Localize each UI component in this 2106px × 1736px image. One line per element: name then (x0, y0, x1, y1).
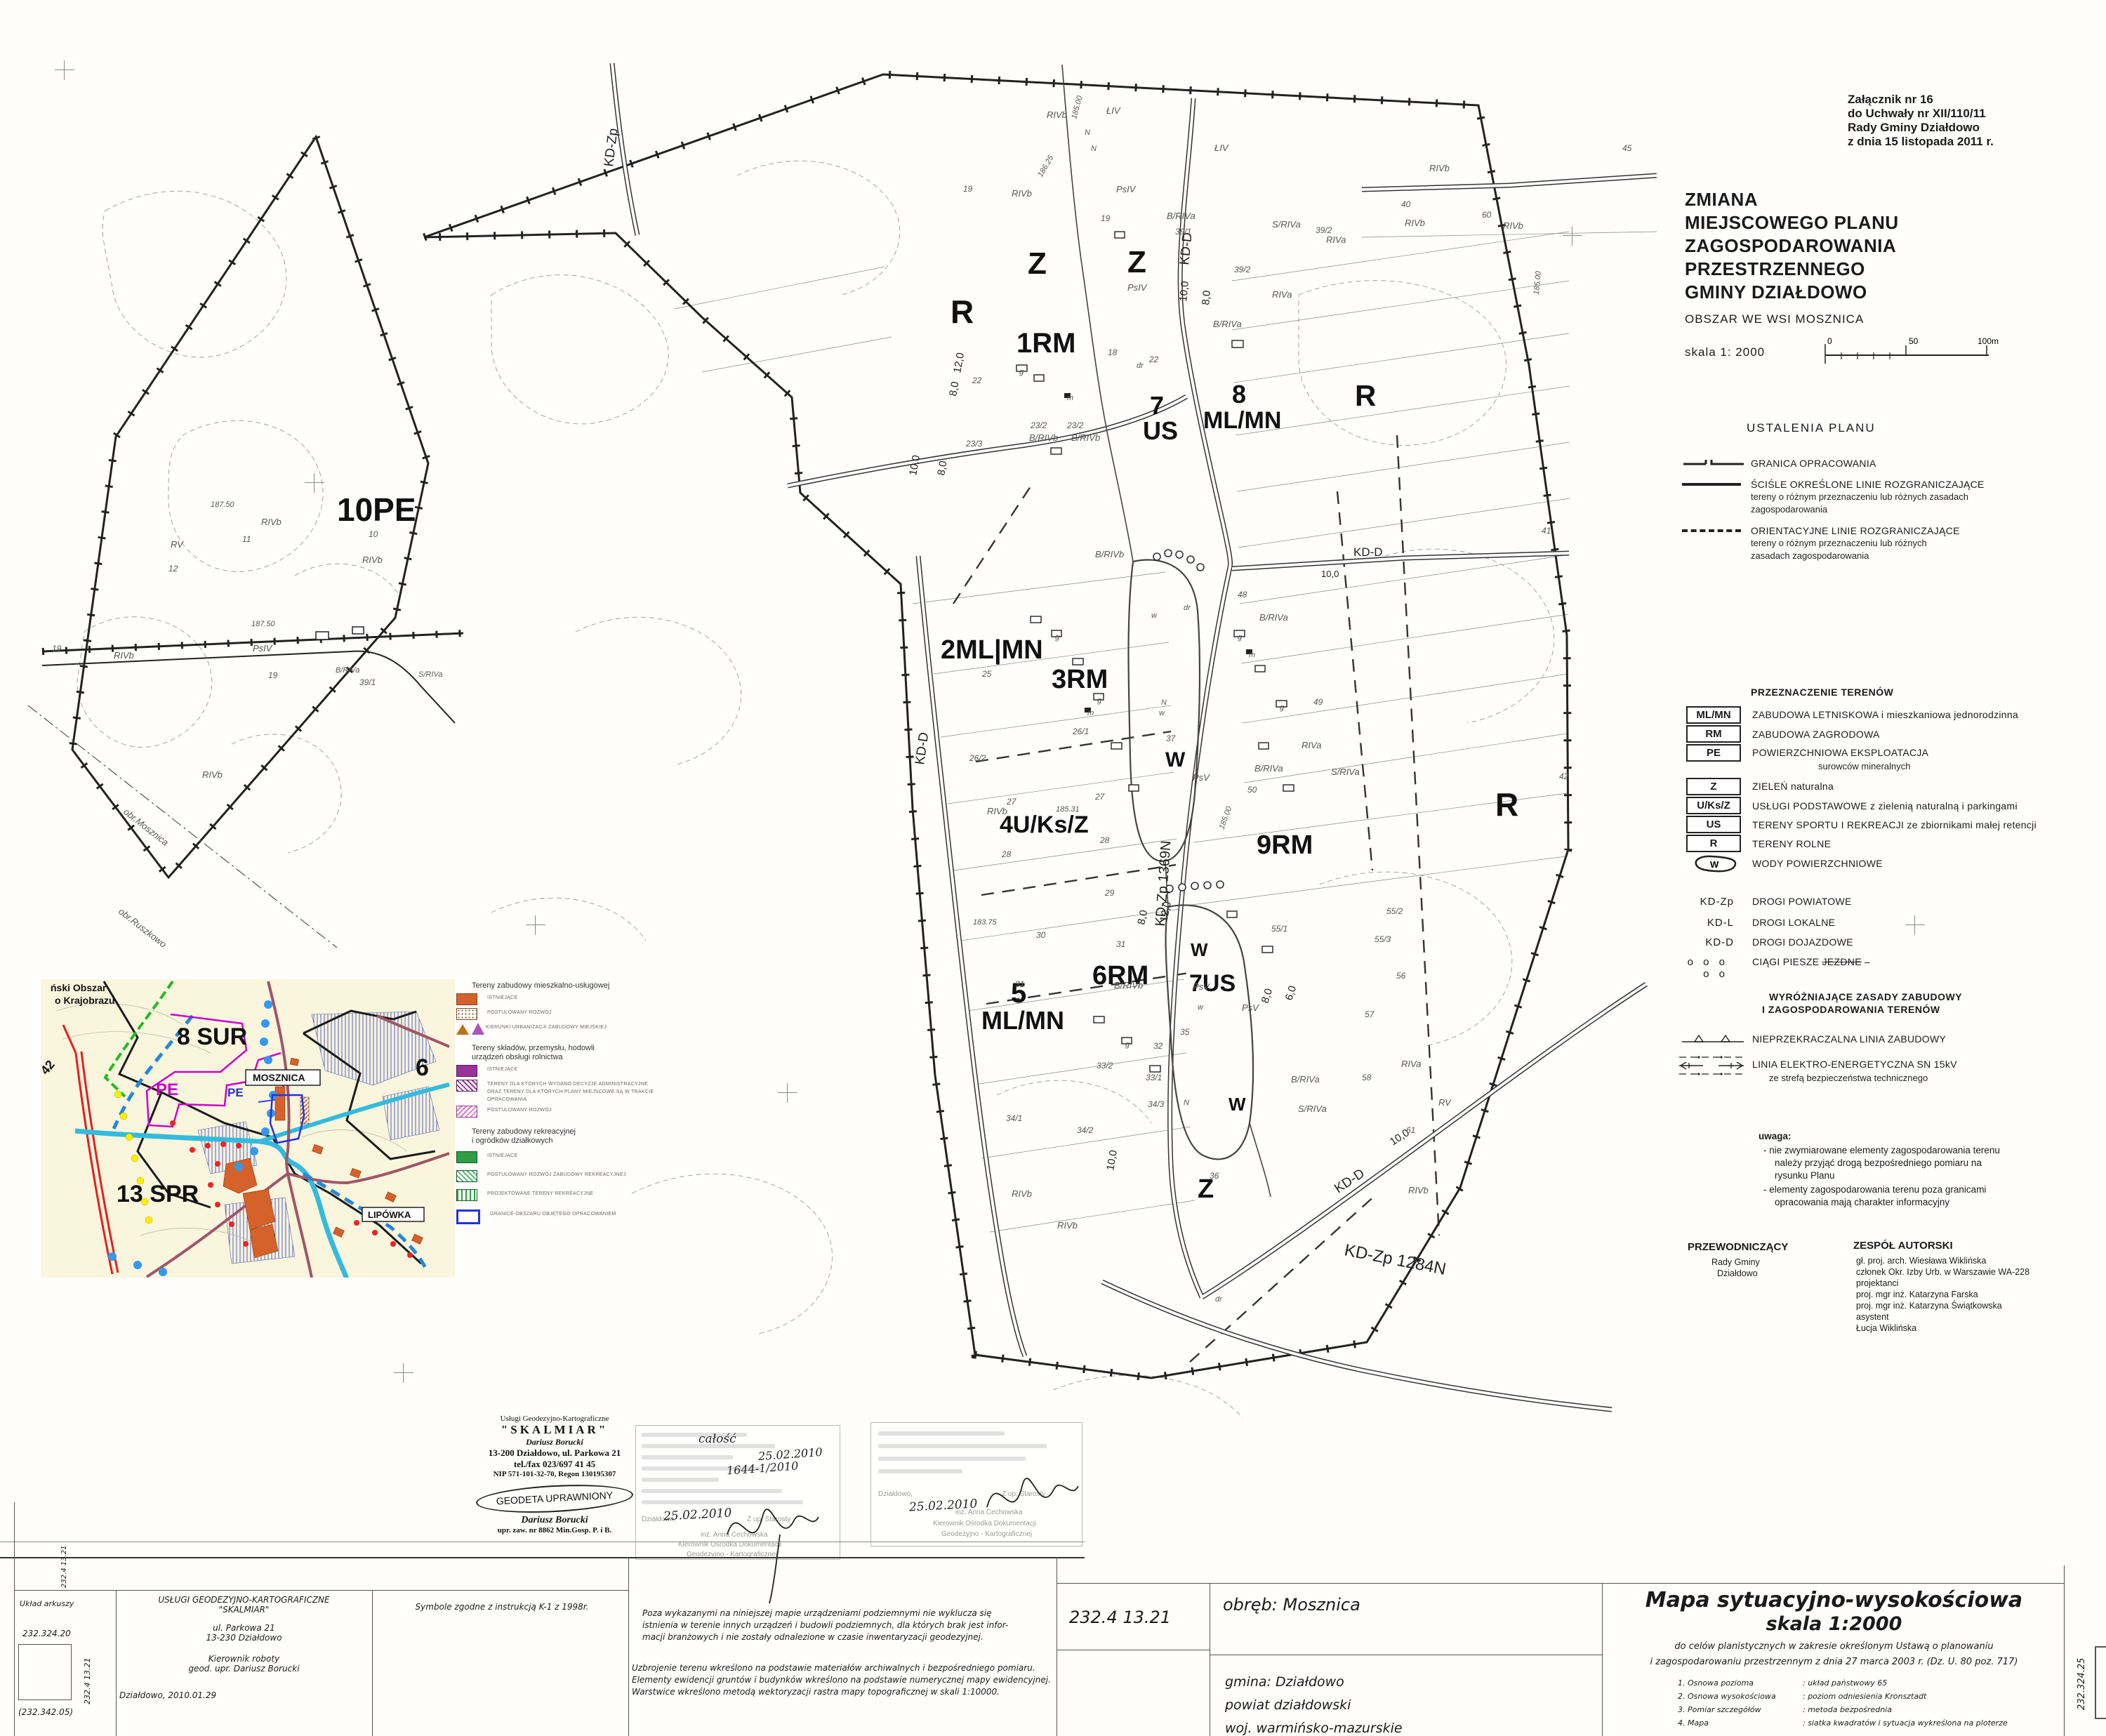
soil-label: RIVb (362, 555, 383, 565)
soil-label: RV (171, 539, 184, 550)
legend-item-sub: zagospodarowania (1751, 504, 1827, 515)
footer-border (1210, 1655, 1602, 1655)
svg-text:B/RIVa: B/RIVa (1259, 612, 1288, 623)
footer-border (372, 1590, 373, 1736)
svg-text:50: 50 (1247, 785, 1257, 795)
inset-village-label: LIPÓWKA (368, 1210, 411, 1220)
legend-item-label: ZABUDOWA LETNISKOWA i mieszkaniowa jedno… (1752, 709, 2018, 720)
footer-border (14, 1502, 15, 1736)
footer-item-name: 4. Mapa (1678, 1716, 1776, 1730)
scale-bar: 0 50 100m (1822, 336, 2004, 364)
road-label: KD-D (1353, 545, 1383, 559)
svg-text:g: g (1019, 368, 1024, 376)
triangle-orange-icon (456, 1024, 469, 1035)
svg-text:183.75: 183.75 (973, 918, 998, 927)
svg-text:41: 41 (1542, 526, 1551, 536)
footer-company-line: Działdowo, 2010.01.29 (119, 1690, 369, 1700)
inset-legend-label: TERENY DLA KTÓRYCH WYDANO DECYZJE ADMINI… (487, 1080, 654, 1087)
inset-legend-label: PROJEKTOWANE TERENY REKREACYJNE (487, 1189, 593, 1197)
title-line: PRZESTRZENNEGO (1685, 258, 1899, 281)
chairman-line: Rady Gminy (1711, 1257, 1760, 1268)
footer-border (2064, 1565, 2065, 1736)
footer-woj: woj. warmińsko-mazurskie (1225, 1721, 1403, 1736)
svg-text:49: 49 (1313, 697, 1323, 707)
dim-label: 10,0 (1104, 1149, 1120, 1172)
footer-purpose-line: do celów planistycznych w zakresie okreś… (1608, 1641, 2060, 1652)
attachment-line: z dnia 15 listopada 2011 r. (1848, 135, 1994, 149)
attachment-line: Załącznik nr 16 (1848, 93, 1994, 107)
zone-label: Z (1127, 245, 1146, 279)
dim-label: 8,0 (1200, 290, 1213, 306)
parcel-label: 10 (369, 529, 378, 539)
contour-label: 187.50 (211, 501, 235, 509)
svg-text:N: N (1085, 128, 1090, 137)
legend-item-label-part: CIĄGI PIESZE (1752, 956, 1822, 967)
svg-text:PsIV: PsIV (1116, 184, 1137, 194)
svg-text:g: g (1125, 1040, 1130, 1049)
swatch-plan-boundary (456, 1210, 480, 1224)
svg-text:45: 45 (1622, 143, 1632, 153)
footer-note-1: Poza wykazanymi na niniejszej mapie urzą… (642, 1608, 1008, 1643)
uwaga-line: - nie zwymiarowane elementy zagospodarow… (1763, 1144, 2000, 1156)
soil-label: B/RIVa (336, 666, 359, 675)
svg-text:dr: dr (1137, 362, 1144, 370)
uwaga-header: uwaga: (1759, 1130, 1792, 1142)
scisle-symbol (1682, 483, 1741, 486)
svg-text:19: 19 (963, 184, 973, 194)
svg-text:31: 31 (1116, 939, 1125, 949)
footer-company-line: USŁUGI GEODEZYJNO-KARTOGRAFICZNE (119, 1595, 369, 1605)
grid-cross (1905, 915, 1925, 935)
footer-item-value: : siatka kwadratów i sytuacja wykreślona… (1803, 1716, 2008, 1730)
svg-text:PsV: PsV (1193, 981, 1210, 992)
inset-study-map: ński Obszar o Krajobrazu 8 SUR PE PE MOS… (41, 979, 455, 1278)
footer-note-line: Elementy ewidencji gruntów i budynków wk… (632, 1674, 1051, 1686)
sheet-number-big: 232.4 13.21 (1069, 1608, 1171, 1627)
dim-label: 6,0 (1283, 984, 1299, 1002)
inset-pe-label: PE (156, 1080, 178, 1099)
soil-label: RIVb (202, 769, 223, 780)
svg-text:B/RIVb: B/RIVb (1114, 980, 1143, 990)
uwaga-line: opracowania mają charakter informacyjny (1775, 1196, 1949, 1208)
inset-mosznica-box: MOSZNICA (246, 1070, 320, 1085)
svg-text:57: 57 (1365, 1009, 1375, 1019)
team-line: asystent (1856, 1311, 1889, 1323)
skalmiar-stamp: Usługi Geodezyjno-Kartograficzne "SKALMI… (449, 1414, 660, 1535)
footer-item-name: 3. Pomiar szczegółów (1678, 1703, 1776, 1716)
svg-text:28: 28 (1001, 849, 1012, 859)
attachment-block: Załącznik nr 16 do Uchwały nr XII/110/11… (1848, 93, 1994, 149)
footer-items-names: 1. Osnowa pozioma 2. Osnowa wysokościowa… (1678, 1676, 1776, 1730)
svg-text:g: g (1238, 633, 1243, 642)
footer-border (14, 1590, 628, 1591)
legend-item-label: USŁUGI PODSTAWOWE z zielenią naturalną i… (1752, 800, 2018, 811)
team-line: członek Okr. Izby Urb. w Warszawie WA-22… (1856, 1266, 2029, 1278)
area-label: OBSZAR WE WSI MOSZNICA (1685, 312, 1864, 326)
obreb-label: obr.Ruszkowo (117, 906, 168, 950)
zone-code-box: Z (1686, 778, 1741, 795)
road-label: KD-D (1177, 232, 1196, 265)
svg-text:30: 30 (1036, 930, 1046, 940)
svg-text:m: m (1249, 651, 1255, 659)
svg-text:26/2: 26/2 (969, 753, 986, 763)
inset-village-label: MOSZNICA (253, 1072, 305, 1083)
footer-item-name: 1. Osnowa pozioma (1678, 1676, 1776, 1690)
svg-text:19: 19 (1101, 213, 1111, 223)
svg-text:23/2: 23/2 (1066, 420, 1084, 430)
svg-text:27: 27 (1094, 792, 1106, 802)
legend-item-sub: surowców mineralnych (1818, 761, 1911, 771)
triangle-purple-icon (472, 1023, 484, 1035)
svg-text:60: 60 (1482, 210, 1492, 220)
svg-text:ŁIV: ŁIV (1214, 143, 1229, 153)
stamp-city: Działdowo, (878, 1490, 913, 1498)
zone-label: 2ML|MN (941, 635, 1043, 665)
legend-item-label: GRANICA OPRACOWANIA (1751, 458, 1876, 469)
footer-note-line: Uzbrojenie terenu wkreślono na podstawie… (632, 1662, 1051, 1674)
svg-text:42: 42 (1559, 771, 1569, 781)
svg-text:39/2: 39/2 (1316, 225, 1332, 235)
zone-label: R (951, 293, 974, 330)
svg-text:32: 32 (1153, 1041, 1163, 1051)
svg-text:RIVa: RIVa (1326, 234, 1346, 245)
zone-code-box: PE (1686, 744, 1741, 762)
svg-text:RIVb: RIVb (1408, 1185, 1429, 1195)
inset-legend-label: KIERUNKI URBANIZACJI ZABUDOWY MIEJSKIEJ (486, 1023, 607, 1031)
inset-legend-label: OPRACOWANIA (487, 1095, 654, 1103)
inset-corner-label: o Krajobrazu (55, 995, 115, 1006)
sheet-number-vertical: 232.4 13.21 (83, 1658, 92, 1704)
inset-legend-header: Tereny zabudowy rekreacyjnej (472, 1127, 667, 1137)
uwaga-line: - elementy zagospodarowania terenu poza … (1763, 1184, 1986, 1195)
road-label: KD-D (1332, 1166, 1367, 1196)
inset-legend-label: ISTNIEJĄCE (487, 993, 517, 1001)
zone-label: 9RM (1257, 830, 1313, 860)
sheet-index-box (18, 1644, 72, 1700)
legend-item-sub: tereny o różnym przeznaczeniu lub różnyc… (1751, 538, 1927, 548)
svg-text:g: g (1055, 633, 1060, 642)
zone-label: R (1495, 786, 1518, 823)
svg-text:RIVb: RIVb (987, 806, 1007, 816)
dim-label: 8,0 (947, 380, 961, 397)
inset-legend-header: i ogródków działkowych (472, 1137, 667, 1146)
zone-labels: Z Z R 1RM 7 US 8 ML/MN R 2ML|MN 3RM 9RM … (941, 245, 1518, 1204)
road-label: KD-Zp (602, 128, 621, 168)
pedestrian-symbol: o o o o o (1678, 956, 1728, 980)
svg-text:RIVa: RIVa (1272, 289, 1292, 300)
dim-label: 10,0 (907, 454, 922, 477)
zone-code-box: RM (1686, 725, 1741, 743)
svg-text:61: 61 (1406, 1125, 1415, 1135)
zone-label: R (1355, 379, 1376, 412)
surveyor-signature: Dariusz Borucki (449, 1515, 660, 1526)
svg-text:18: 18 (1108, 347, 1118, 357)
svg-text:PsV: PsV (1193, 772, 1210, 783)
soil-label: RIVb (261, 517, 282, 527)
footer-item-value: : metoda bezpośrednia (1803, 1703, 2008, 1716)
svg-text:dr: dr (1215, 1295, 1223, 1304)
svg-text:RIVb: RIVb (1047, 110, 1067, 120)
svg-text:RIVb: RIVb (1405, 218, 1425, 228)
title-line: MIEJSCOWEGO PLANU (1685, 211, 1899, 234)
svg-text:g: g (1097, 696, 1102, 705)
footer-powiat: powiat działdowski (1225, 1697, 1351, 1713)
obreb-label: obr.Mosznica (121, 807, 171, 848)
stamp-line: Dariusz Borucki (449, 1437, 660, 1447)
footer-border (1057, 1557, 1057, 1736)
water-label: W (1228, 1094, 1246, 1115)
map-sheet: 10PE 10 RIVb RIVb RIVb RIVb RV 11 12 19 … (0, 0, 2106, 1736)
surveyor-oval-stamp: GEODETA UPRAWNIONY (475, 1481, 634, 1516)
svg-text:185.00: 185.00 (1218, 804, 1234, 830)
handwritten-note: całość (698, 1432, 736, 1446)
inset-legend-label: ISTNIEJĄCE (487, 1151, 517, 1159)
legend-item-label: NIEPRZEKRACZALNA LINIA ZABUDOWY (1752, 1033, 1946, 1045)
team-line: proj. mgr inż. Katarzyna Świątkowska (1856, 1300, 2002, 1311)
office-stamp-left: Działdowo, Z up. Starosty inż. Anna Cech… (635, 1425, 840, 1560)
svg-text:185.31: 185.31 (1056, 805, 1080, 814)
legend-item-label: DROGI LOKALNE (1752, 917, 1835, 928)
scale-tick-100: 100m (1978, 336, 1999, 346)
road-code: KD-L (1683, 917, 1734, 929)
footer-gmina: gmina: Działdowo (1225, 1674, 1344, 1690)
inset-legend-label: ORAZ TERENY DLA KTÓRYCH PLANY MIEJSCOWE … (487, 1087, 654, 1095)
svg-text:PsV: PsV (1242, 1002, 1259, 1013)
attachment-line: Rady Gminy Działdowo (1848, 121, 1994, 135)
sheet-number-vertical: 232.324.25 (2077, 1658, 2087, 1710)
zone-code-box: R (1686, 835, 1741, 852)
parcel-label: 11 (242, 534, 251, 544)
soil-label: PsIV (253, 643, 273, 654)
footer-note-line: Poza wykazanymi na niniejszej mapie urzą… (642, 1608, 1008, 1619)
granica-symbol (1682, 456, 1747, 468)
margin-box (2095, 1646, 2106, 1719)
svg-text:RIVa: RIVa (1401, 1059, 1421, 1069)
svg-text:B/RIVb: B/RIVb (1095, 549, 1124, 559)
stamp-line: upr. zaw. nr 8862 Min.Gosp. P. i B. (449, 1526, 660, 1535)
ustalenia-header: USTALENIA PLANU (1747, 421, 1876, 435)
svg-text:31: 31 (1015, 979, 1024, 989)
svg-text:w: w (1198, 1003, 1204, 1012)
svg-text:RIVa: RIVa (1302, 740, 1321, 750)
svg-text:29: 29 (1104, 888, 1115, 898)
soil-label: RIVb (114, 650, 134, 661)
svg-text:36: 36 (1210, 1171, 1219, 1181)
inset-lipowka-box: LIPÓWKA (362, 1207, 424, 1221)
building-line-symbol (1682, 1032, 1745, 1046)
footer-symbols-note: Symbole zgodne z instrukcją K-1 z 1998r. (379, 1602, 625, 1612)
svg-text:22: 22 (972, 376, 982, 385)
svg-text:RV: RV (1438, 1097, 1452, 1108)
zone-code-box: U/Ks/Z (1686, 797, 1741, 814)
plan-title: ZMIANA MIEJSCOWEGO PLANU ZAGOSPODAROWANI… (1685, 188, 1899, 304)
footer-items-values: : układ państwowy 65 : poziom odniesieni… (1803, 1676, 2008, 1730)
orientation-dashed-lines (953, 435, 1439, 1362)
misc-small-labels: dr dr dr N N N N w w w g g g g g g m m m… (973, 94, 1543, 1304)
swatch-postulated-industry (456, 1106, 477, 1118)
inset-legend-label: POSTULOWANY ROZWÓJ (487, 1008, 552, 1016)
svg-text:m: m (1087, 709, 1094, 717)
inset-legend-header: urządzeń obsługi rolnictwa (472, 1053, 667, 1062)
swatch-existing-residential (456, 993, 477, 1005)
svg-text:23/2: 23/2 (1030, 420, 1047, 430)
svg-text:B/RIVb: B/RIVb (1071, 432, 1100, 443)
svg-text:185.00: 185.00 (1532, 270, 1543, 295)
swatch-existing-recreation (456, 1151, 477, 1163)
inset-legend-label: ISTNIEJĄCE (487, 1065, 517, 1073)
uwaga-line: należy przyjąć drogą bezpośredniego pomi… (1775, 1157, 1982, 1169)
parcel-label: 12 (168, 564, 178, 574)
legend-item-label: ZIELEŃ naturalna (1752, 781, 1834, 792)
footer-item-value: : układ państwowy 65 (1803, 1676, 2008, 1690)
footer-border (1210, 1583, 1210, 1736)
legend-item-sub: tereny o różnym przeznaczeniu lub różnyc… (1751, 491, 1968, 502)
footer-company-line: 13-230 Działdowo (119, 1633, 369, 1643)
dim-label: 10,0 (1177, 281, 1191, 303)
inset-pe-label: PE (227, 1086, 244, 1099)
inset-legend: Tereny zabudowy mieszkalno-usługowej IST… (456, 981, 667, 1227)
svg-text:B/RIVa: B/RIVa (1167, 211, 1196, 221)
svg-text:B/RIVa: B/RIVa (1254, 763, 1283, 774)
footer-obreb: obręb: Mosznica (1223, 1595, 1360, 1615)
footer-note-2: Uzbrojenie terenu wkreślono na podstawie… (632, 1662, 1051, 1698)
dim-label: 8,0 (1259, 987, 1276, 1005)
road-code: KD-Zp (1683, 896, 1734, 908)
svg-text:39/2: 39/2 (1234, 265, 1251, 274)
svg-text:g: g (1280, 703, 1285, 712)
svg-text:55/2: 55/2 (1386, 906, 1403, 916)
svg-text:25: 25 (981, 669, 992, 679)
svg-text:56: 56 (1396, 971, 1406, 981)
inset-zone-number: 6 (416, 1054, 429, 1081)
zone-label: 1RM (1016, 328, 1075, 359)
footer-note-line: Warstwice wkreślono metodą wektoryzacji … (632, 1686, 1051, 1698)
water-label: W (1165, 748, 1186, 771)
main-map: Z Z R 1RM 7 US 8 ML/MN R 2ML|MN 3RM 9RM … (393, 39, 1657, 1450)
footer-map-scale: skala 1:2000 (1608, 1613, 2060, 1635)
legend-item-label: ZABUDOWA ZAGRODOWA (1752, 729, 1880, 740)
footer-purpose-line: i zagospodarowaniu przestrzennym z dnia … (1608, 1657, 2060, 1667)
zone-label: 8 (1232, 380, 1246, 409)
zone-label: US (1143, 416, 1178, 445)
svg-text:33/2: 33/2 (1097, 1061, 1113, 1071)
svg-text:RIVb: RIVb (1503, 220, 1523, 231)
zone-label: Z (1028, 246, 1047, 281)
legend-item-label-strike: JEZDNE (1822, 956, 1862, 967)
footer-border (628, 1557, 629, 1736)
attachment-line: do Uchwały nr XII/110/11 (1848, 107, 1994, 121)
svg-text:ŁIV: ŁIV (1106, 105, 1121, 116)
inset-legend-header: Tereny składów, przemysłu, hodowli (472, 1044, 667, 1053)
svg-text:55/3: 55/3 (1375, 934, 1391, 944)
inset-legend-header: Tereny zabudowy mieszkalno-usługowej (472, 981, 667, 990)
svg-text:22: 22 (1148, 355, 1159, 364)
team-line: Łucja Wiklińska (1856, 1323, 1916, 1334)
svg-text:S/RIVa: S/RIVa (1331, 767, 1360, 777)
footer-border (116, 1590, 117, 1736)
svg-text:S/RIVa: S/RIVa (1298, 1104, 1327, 1114)
wyroznienia-header: WYRÓŻNIAJĄCE ZASADY ZABUDOWY (1769, 991, 1962, 1002)
svg-text:34/1: 34/1 (1006, 1113, 1022, 1123)
legend-item-label: TERENY SPORTU I REKREACJI ze zbiornikami… (1752, 819, 2037, 830)
sheet-number-vertical: 232.4 13.21 (60, 1546, 68, 1588)
road-label: KD-Zp 1284N (1343, 1240, 1448, 1279)
chairman-title: PRZEWODNICZĄCY (1688, 1241, 1788, 1253)
footer-border (1057, 1583, 2064, 1584)
svg-text:N: N (1091, 145, 1097, 153)
scale-label: skala 1: 2000 (1685, 345, 1765, 359)
svg-text:23/3: 23/3 (965, 439, 983, 449)
svg-text:B/RIVa: B/RIVa (1291, 1074, 1320, 1085)
svg-text:RIVb: RIVb (1012, 188, 1032, 199)
svg-text:dr: dr (1184, 604, 1191, 612)
inset-zone-label: 8 SUR (177, 1023, 247, 1050)
svg-text:37: 37 (1166, 734, 1177, 743)
frame-line (0, 1542, 1085, 1542)
legend-item-label: ŚCIŚLE OKREŚLONE LINIE ROZGRANICZAJĄCE (1751, 479, 1985, 490)
svg-text:55/1: 55/1 (1271, 924, 1287, 934)
zone-label: 3RM (1052, 665, 1108, 694)
water-label: W (1191, 939, 1208, 960)
dim-label: 12,0 (951, 352, 967, 374)
zone-code-box: US (1686, 816, 1741, 833)
legend-item-sub: ze strefą bezpieczeństwa technicznego (1769, 1073, 1928, 1083)
svg-text:58: 58 (1362, 1073, 1372, 1082)
stamp-line: NIP 571-101-32-70, Regon 130195307 (449, 1470, 660, 1478)
title-line: GMINY DZIAŁDOWO (1685, 281, 1899, 304)
footer-border (1057, 1650, 1210, 1650)
dim-label: 8,0 (935, 460, 949, 476)
powerline-symbol (1679, 1053, 1747, 1078)
footer-company-line: Kierownik roboty (119, 1654, 369, 1664)
legend-item-label: POWIERZCHNIOWA EKSPLOATACJA (1752, 747, 1928, 758)
svg-text:26/1: 26/1 (1072, 727, 1089, 736)
office-stamp-right: Działdowo, Z up. Starosty inż. Anna Cech… (870, 1422, 1082, 1546)
swatch-postulated-recreation (456, 1170, 477, 1182)
team-line: gł. proj. arch. Wiesława Wiklińska (1856, 1255, 1986, 1266)
stamp-line: 13-200 Działdowo, ul. Parkowa 21 (449, 1447, 660, 1459)
road-code: KD-D (1683, 936, 1734, 948)
svg-text:27: 27 (1006, 797, 1017, 807)
scale-tick-0: 0 (1827, 336, 1832, 346)
svg-text:N: N (1184, 1099, 1189, 1107)
inset-zone-label: 13 SPR (117, 1181, 199, 1207)
footer-note-line: istnienia w terenie innych urządzeń i bu… (642, 1619, 1008, 1631)
team-line: projektanci (1856, 1278, 1898, 1289)
footer-item-value: : poziom odniesienia Kronsztadt (1803, 1690, 2008, 1703)
swatch-existing-industry (456, 1065, 477, 1077)
svg-text:34/3: 34/3 (1148, 1099, 1165, 1109)
sheet-number: 232.324.20 (22, 1629, 71, 1638)
zone-label: 7 (1150, 391, 1164, 420)
svg-text:N: N (1161, 698, 1167, 707)
zone-label: ML/MN (1203, 407, 1281, 434)
legend-item-label: ORIENTACYJNE LINIE ROZGRANICZAJĄCE (1751, 525, 1960, 536)
dim-label: 10,0 (1321, 569, 1339, 579)
dim-label: 8,0 (1135, 909, 1150, 926)
svg-text:34/2: 34/2 (1077, 1125, 1094, 1135)
footer-company: USŁUGI GEODEZYJNO-KARTOGRAFICZNE "SKALMI… (119, 1595, 369, 1700)
chairman-line: Działdowo (1717, 1268, 1758, 1279)
legend-item-label: LINIA ELEKTRO-ENERGETYCZNA SN 15kV (1752, 1059, 1957, 1070)
parcel-label: 39/1 (359, 677, 376, 687)
svg-text:35: 35 (1180, 1027, 1190, 1037)
svg-text:B/RIVa: B/RIVa (1213, 319, 1242, 329)
svg-text:RIVb: RIVb (1057, 1220, 1078, 1231)
team-header: ZESPÓŁ AUTORSKI (1853, 1240, 1953, 1252)
road-label: KD-D (913, 731, 932, 766)
svg-text:28: 28 (1099, 835, 1110, 845)
